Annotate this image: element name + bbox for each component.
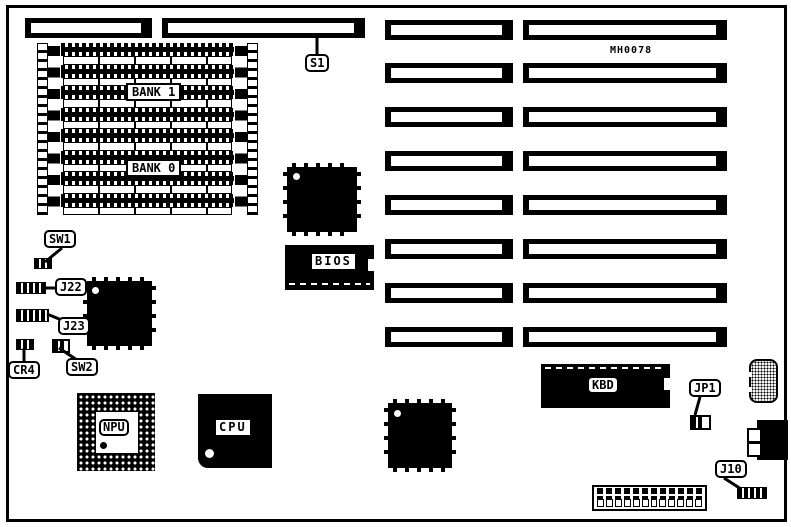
part-number: MH0078: [610, 45, 652, 56]
kbd-notch: [664, 378, 671, 390]
j23-connector: [16, 309, 49, 322]
slot-opening: [529, 200, 716, 210]
expansion-slot-short: [385, 107, 513, 127]
jp1-label: JP1: [689, 379, 721, 397]
chip-leads: [384, 408, 388, 463]
memory-dip-row: [61, 194, 234, 216]
capacitor-component: [749, 359, 778, 403]
expansion-slot-long: [523, 195, 727, 215]
expansion-slot-long: [523, 63, 727, 83]
expansion-slot-long: [523, 239, 727, 259]
slot-opening: [529, 25, 716, 35]
chip-leads: [452, 408, 456, 463]
expansion-slot-short: [385, 195, 513, 215]
chip-leads: [357, 172, 361, 227]
power-pin: [651, 499, 658, 507]
cpu-label: CPU: [216, 420, 250, 435]
pin1-dot: [293, 173, 300, 180]
bios-chip: BIOS: [285, 245, 374, 290]
chip-leads: [283, 172, 287, 227]
power-pin: [659, 499, 666, 507]
bios-socket-dashes: [289, 283, 370, 285]
slot-opening: [391, 332, 502, 342]
memory-bank-area: BANK 1 BANK 0: [37, 43, 258, 215]
din-mount-tab: [747, 442, 762, 457]
j23-label: J23: [58, 317, 90, 335]
memory-bracket-column-right: [235, 43, 247, 215]
kbd-socket-dashes: [545, 367, 666, 369]
expansion-slot-short: [385, 20, 513, 40]
expansion-slot-long: [523, 20, 727, 40]
slot-opening: [391, 25, 502, 35]
slot-opening: [529, 68, 716, 78]
slot-opening: [529, 156, 716, 166]
slot-opening: [391, 68, 502, 78]
power-connector-tabs: [597, 488, 702, 494]
expansion-slot-long: [523, 283, 727, 303]
dip-legs: [61, 43, 234, 56]
dip-legs: [61, 129, 234, 142]
memory-dip-rows: [61, 43, 234, 215]
s1-label: S1: [305, 54, 329, 72]
dip-body: [63, 207, 232, 216]
power-pin: [686, 499, 693, 507]
slot-opening: [391, 244, 502, 254]
memory-dip-row: [61, 43, 234, 65]
pin1-dot: [92, 287, 99, 294]
sw2-switch: [52, 339, 70, 353]
expansion-slot-long: [523, 327, 727, 347]
motherboard-diagram: MH0078 BANK 1 BANK 0 BIOS KBD CPU: [0, 0, 791, 527]
cr4-label: CR4: [8, 361, 40, 379]
expansion-slot-short: [385, 151, 513, 171]
bank1-label: BANK 1: [126, 83, 181, 101]
slot-opening: [529, 244, 716, 254]
dip-body: [63, 185, 232, 194]
expansion-slot-short: [385, 239, 513, 259]
dip-legs: [61, 65, 234, 78]
bios-label: BIOS: [312, 254, 355, 269]
sw2-label: SW2: [66, 358, 98, 376]
power-pin: [624, 499, 631, 507]
dip-legs: [61, 194, 234, 207]
din-mount-tab: [747, 428, 762, 443]
edge-connector-right: [162, 18, 365, 38]
sw1-label: SW1: [44, 230, 76, 248]
keyboard-controller-chip: KBD: [541, 364, 670, 408]
kbd-label: KBD: [587, 376, 619, 394]
slot-opening: [391, 112, 502, 122]
pin1-dot: [100, 442, 107, 449]
memory-pin-strip-right: [247, 43, 258, 215]
memory-pin-strip-left: [37, 43, 48, 215]
pin1-dot: [394, 410, 401, 417]
bios-notch: [368, 259, 375, 271]
power-connector: [592, 485, 707, 511]
edge-connector-slot: [168, 23, 354, 33]
pin1-dot: [205, 449, 214, 458]
j22-label: J22: [55, 278, 87, 296]
memory-bracket-column-left: [48, 43, 60, 215]
power-pin: [597, 499, 604, 507]
power-pin: [695, 499, 702, 507]
npu-socket-center: NPU: [96, 412, 138, 453]
sw1-switch: [34, 258, 52, 269]
j10-connector: [737, 487, 767, 499]
slot-opening: [391, 156, 502, 166]
j10-label: J10: [715, 460, 747, 478]
power-pin: [633, 499, 640, 507]
edge-connector-slot: [31, 23, 141, 33]
power-pin: [677, 499, 684, 507]
dip-legs: [61, 108, 234, 121]
j22-connector: [16, 282, 46, 294]
expansion-slot-long: [523, 107, 727, 127]
slot-opening: [391, 200, 502, 210]
memory-dip-row: [61, 108, 234, 130]
slot-opening: [529, 332, 716, 342]
expansion-slot-short: [385, 63, 513, 83]
npu-socket: NPU: [77, 393, 155, 471]
expansion-slot-long: [523, 151, 727, 171]
power-pin: [668, 499, 675, 507]
power-pin: [642, 499, 649, 507]
dip-body: [63, 142, 232, 151]
expansion-slot-short: [385, 283, 513, 303]
qfp-chip-upper: [287, 167, 357, 232]
expansion-slot-short: [385, 327, 513, 347]
bank0-label: BANK 0: [126, 159, 181, 177]
power-connector-pins: [597, 499, 702, 507]
npu-label: NPU: [99, 419, 129, 436]
slot-opening: [529, 112, 716, 122]
slot-opening: [529, 288, 716, 298]
keyboard-din-connector: [757, 420, 788, 460]
dip-body: [63, 121, 232, 130]
cr4-component: [16, 339, 34, 350]
edge-connector-left: [25, 18, 152, 38]
dip-body: [63, 56, 232, 65]
slot-opening: [391, 288, 502, 298]
qfp-chip-left: [87, 281, 152, 346]
chip-leads: [152, 286, 156, 341]
power-pin: [606, 499, 613, 507]
cpu-chip: CPU: [198, 394, 272, 468]
memory-dip-row: [61, 129, 234, 151]
qfp-chip-center: [388, 403, 452, 468]
jp1-jumper: [690, 415, 711, 430]
power-pin: [615, 499, 622, 507]
